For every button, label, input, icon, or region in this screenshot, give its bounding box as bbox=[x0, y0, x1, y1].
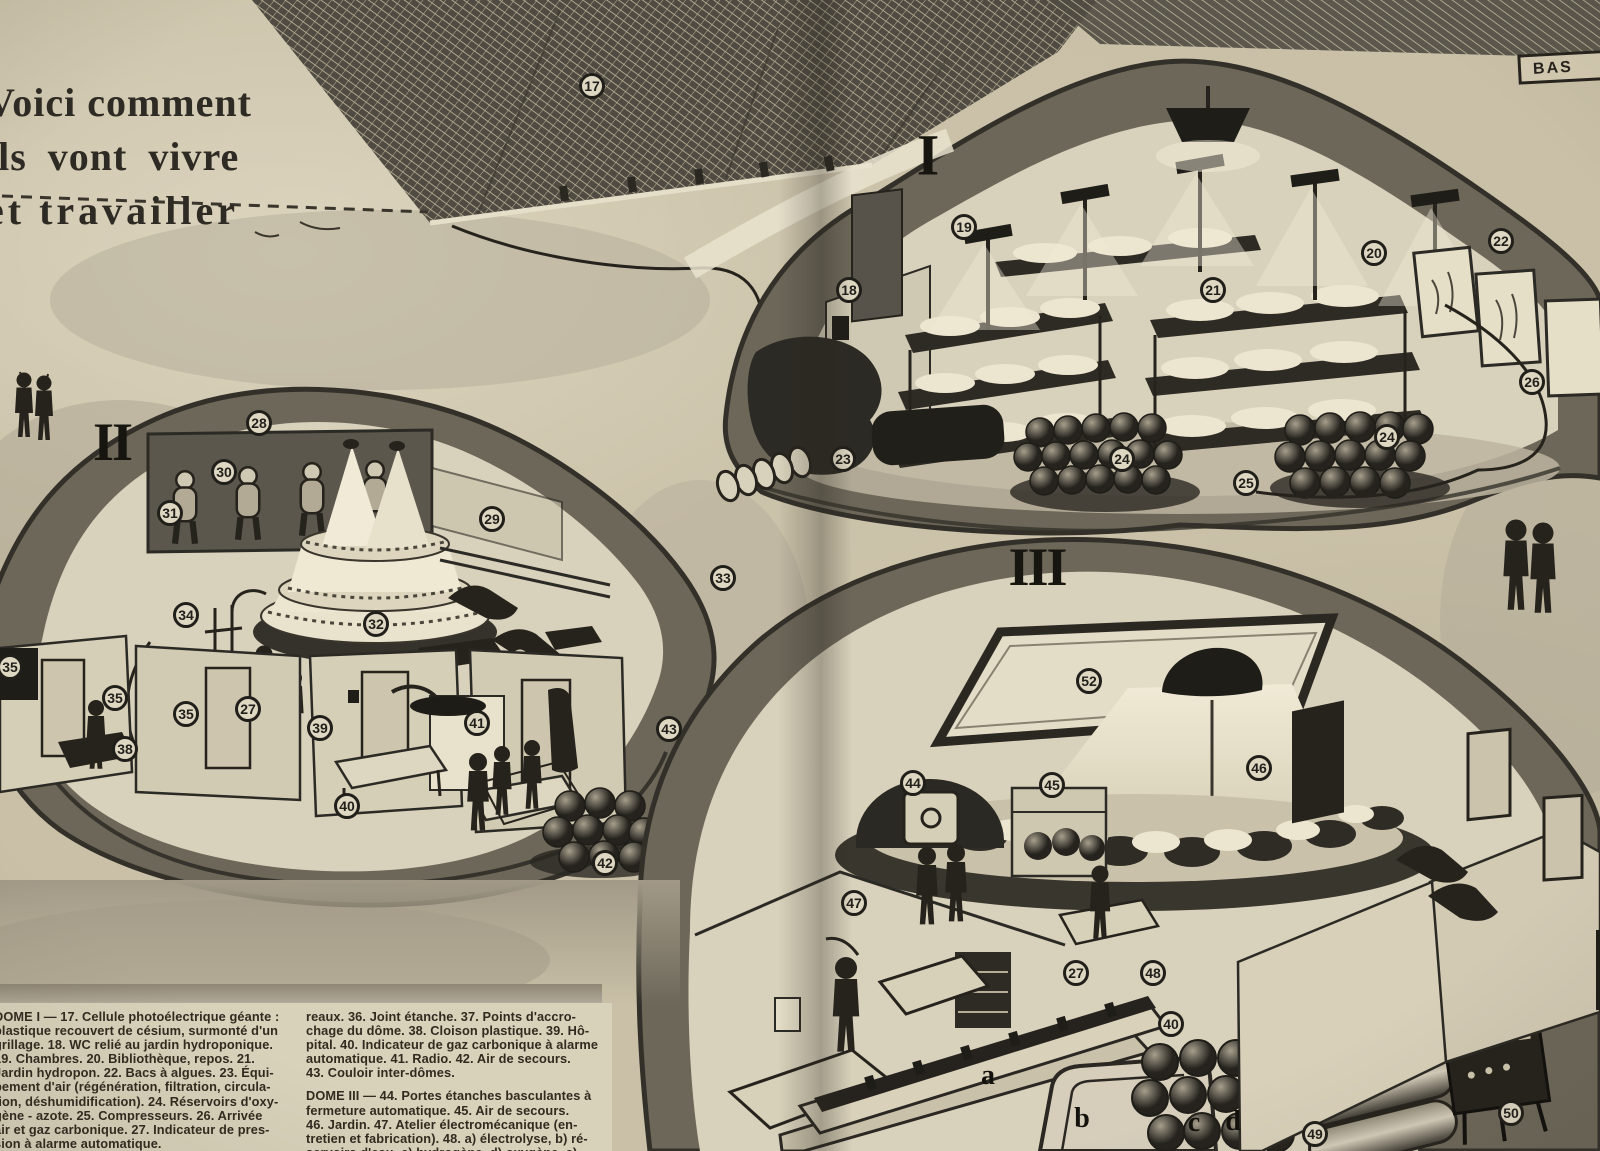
callout-24: 24 bbox=[1374, 424, 1400, 450]
callout-33: 33 bbox=[710, 565, 736, 591]
callout-38: 38 bbox=[112, 736, 138, 762]
dark-bench bbox=[870, 403, 1005, 466]
letter-d: d bbox=[1225, 1106, 1241, 1138]
corner-label: BAS bbox=[1517, 49, 1600, 84]
callout-31: 31 bbox=[157, 500, 183, 526]
callout-27: 27 bbox=[235, 696, 261, 722]
caption-dome-1: DOME I — 17. Cellule photoélectrique géa… bbox=[0, 1010, 300, 1151]
callout-30: 30 bbox=[211, 459, 237, 485]
caption-line: tretien et fabrication). 48. a) électrol… bbox=[306, 1132, 606, 1146]
caption-line: air et gaz carbonique. 27. Indicateur de… bbox=[0, 1123, 300, 1137]
callout-21: 21 bbox=[1200, 277, 1226, 303]
solar-panel-corner bbox=[1048, 0, 1600, 58]
caption-dome-2-and-3: reaux. 36. Joint étanche. 37. Points d'a… bbox=[306, 1010, 606, 1151]
letter-c: c bbox=[1188, 1107, 1200, 1139]
callout-34: 34 bbox=[173, 602, 199, 628]
caption-line: servoirs d'eau, c) hydrogène, d) oxygène… bbox=[306, 1146, 606, 1151]
callout-29: 29 bbox=[479, 506, 505, 532]
callout-45: 45 bbox=[1039, 772, 1065, 798]
callout-42: 42 bbox=[592, 850, 618, 876]
caption-line: 43. Couloir inter-dômes. bbox=[306, 1066, 606, 1080]
caption-line: 46. Jardin. 47. Atelier électromécanique… bbox=[306, 1118, 606, 1132]
callout-46: 46 bbox=[1246, 755, 1272, 781]
caption-line: 19. Chambres. 20. Bibliothèque, repos. 2… bbox=[0, 1052, 300, 1066]
caption-line: tion, déshumidification). 24. Réservoirs… bbox=[0, 1095, 300, 1109]
caption-line: fermeture automatique. 45. Air de secour… bbox=[306, 1104, 606, 1118]
letter-a: a bbox=[981, 1060, 995, 1092]
letter-b: b bbox=[1074, 1103, 1090, 1135]
caption-line: Jardin hydropon. 22. Bacs à algues. 23. … bbox=[0, 1066, 300, 1080]
callout-28: 28 bbox=[246, 410, 272, 436]
headline: Voici comment ils vont vivre et travaill… bbox=[0, 76, 252, 238]
dome-2-numeral: II bbox=[93, 411, 131, 473]
callout-26: 26 bbox=[1519, 369, 1545, 395]
callout-24b: 24 bbox=[1109, 446, 1135, 472]
dome-3-numeral: III bbox=[1008, 536, 1065, 598]
headline-line-2: ils vont vivre bbox=[0, 130, 252, 184]
callout-40b: 40 bbox=[1158, 1011, 1184, 1037]
caption-line: reaux. 36. Joint étanche. 37. Points d'a… bbox=[306, 1010, 606, 1024]
caption-line: plastique recouvert de césium, surmonté … bbox=[0, 1024, 300, 1038]
magazine-spread: Voici comment ils vont vivre et travaill… bbox=[0, 0, 1600, 1151]
dome-1-numeral: I bbox=[917, 122, 938, 189]
callout-52: 52 bbox=[1076, 668, 1102, 694]
caption-line: pement d'air (régénération, filtration, … bbox=[0, 1080, 300, 1094]
callout-19: 19 bbox=[951, 214, 977, 240]
callout-35b: 35 bbox=[102, 685, 128, 711]
caption-line: chage du dôme. 38. Cloison plastique. 39… bbox=[306, 1024, 606, 1038]
callout-25: 25 bbox=[1233, 470, 1259, 496]
callout-47: 47 bbox=[841, 890, 867, 916]
callout-23: 23 bbox=[830, 446, 856, 472]
caption-line: gène - azote. 25. Compresseurs. 26. Arri… bbox=[0, 1109, 300, 1123]
callout-41: 41 bbox=[464, 710, 490, 736]
callout-22: 22 bbox=[1488, 228, 1514, 254]
headline-line-3: et travailler bbox=[0, 184, 252, 238]
callout-43: 43 bbox=[656, 716, 682, 742]
caption-line: automatique. 41. Radio. 42. Air de secou… bbox=[306, 1052, 606, 1066]
caption-line: sion à alarme automatique. bbox=[0, 1137, 300, 1151]
callout-32: 32 bbox=[363, 611, 389, 637]
caption-line: grillage. 18. WC relié au jardin hydropo… bbox=[0, 1038, 300, 1052]
callout-49: 49 bbox=[1302, 1121, 1328, 1147]
callout-39: 39 bbox=[307, 715, 333, 741]
callout-44: 44 bbox=[900, 770, 926, 796]
callout-17: 17 bbox=[579, 73, 605, 99]
caption-line: DOME I — 17. Cellule photoélectrique géa… bbox=[0, 1010, 300, 1024]
headline-line-1: Voici comment bbox=[0, 76, 252, 130]
callout-18: 18 bbox=[836, 277, 862, 303]
callout-35c: 35 bbox=[173, 701, 199, 727]
callout-20: 20 bbox=[1361, 240, 1387, 266]
callout-40: 40 bbox=[334, 793, 360, 819]
caption-line: DOME III — 44. Portes étanches basculant… bbox=[306, 1089, 606, 1103]
callout-27b: 27 bbox=[1063, 960, 1089, 986]
callout-48: 48 bbox=[1140, 960, 1166, 986]
callout-50: 50 bbox=[1498, 1100, 1524, 1126]
caption-line: pital. 40. Indicateur de gaz carbonique … bbox=[306, 1038, 606, 1052]
air-room bbox=[1012, 788, 1106, 876]
